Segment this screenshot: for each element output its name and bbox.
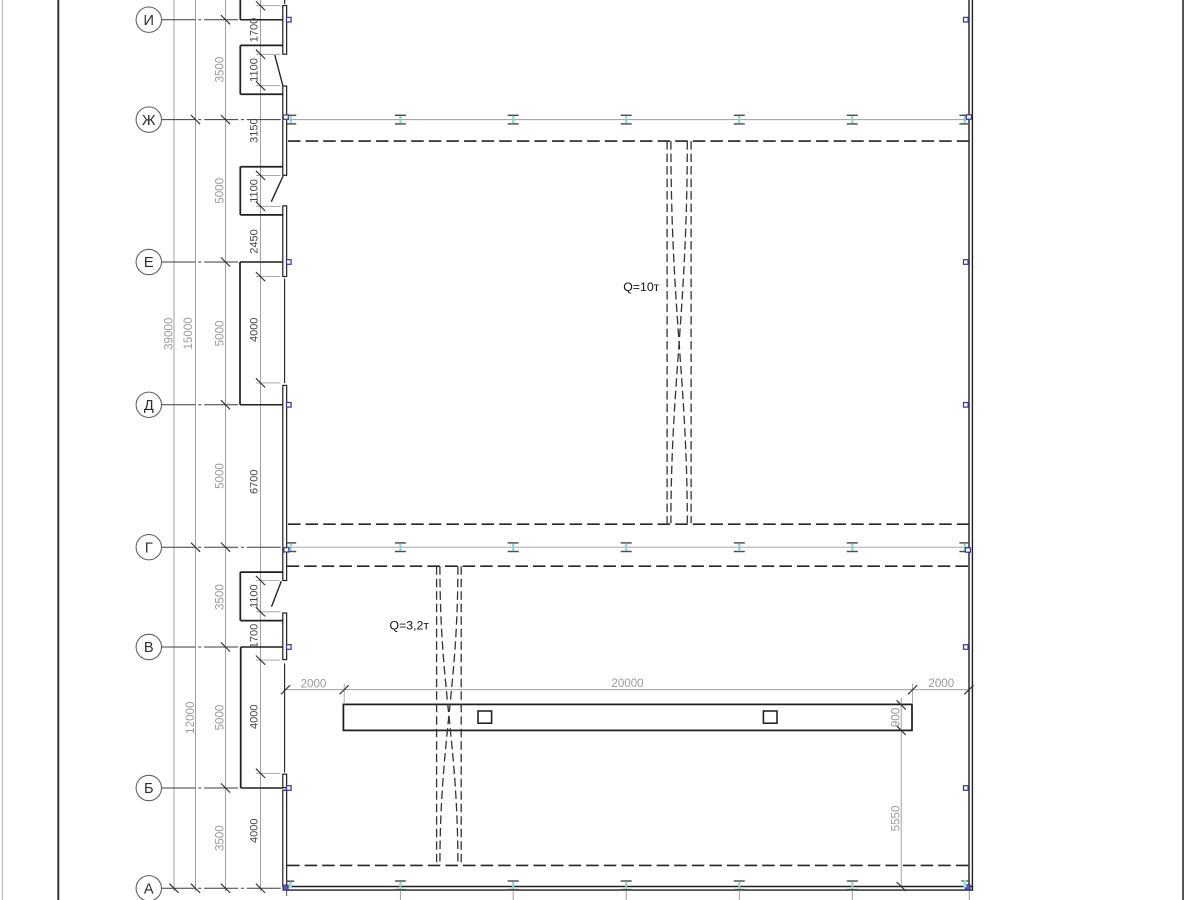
svg-text:3150: 3150 bbox=[249, 118, 261, 142]
svg-text:Е: Е bbox=[144, 255, 154, 271]
svg-text:Q=10т: Q=10т bbox=[623, 280, 659, 294]
svg-text:5000: 5000 bbox=[214, 463, 227, 489]
svg-text:4000: 4000 bbox=[249, 818, 261, 842]
svg-text:3500: 3500 bbox=[214, 825, 227, 851]
svg-text:900: 900 bbox=[890, 708, 903, 727]
svg-text:1100: 1100 bbox=[249, 179, 261, 203]
svg-text:5000: 5000 bbox=[214, 705, 227, 731]
svg-text:И: И bbox=[144, 13, 155, 29]
svg-text:3500: 3500 bbox=[214, 57, 227, 83]
svg-text:39000: 39000 bbox=[163, 318, 176, 350]
svg-text:А: А bbox=[144, 882, 154, 898]
svg-text:1100: 1100 bbox=[249, 58, 261, 82]
svg-text:15000: 15000 bbox=[182, 317, 195, 349]
svg-text:2000: 2000 bbox=[301, 678, 327, 691]
svg-text:5550: 5550 bbox=[890, 806, 903, 832]
svg-text:2000: 2000 bbox=[928, 677, 954, 690]
svg-text:Б: Б bbox=[144, 781, 154, 797]
svg-text:1700: 1700 bbox=[249, 18, 261, 42]
svg-text:В: В bbox=[144, 640, 154, 656]
svg-text:1100: 1100 bbox=[249, 584, 261, 608]
svg-text:2450: 2450 bbox=[249, 229, 261, 253]
svg-text:Г: Г bbox=[145, 540, 153, 556]
svg-text:3500: 3500 bbox=[214, 584, 227, 610]
svg-text:Ж: Ж bbox=[142, 113, 156, 129]
svg-text:6700: 6700 bbox=[249, 469, 261, 493]
svg-text:12000: 12000 bbox=[184, 702, 197, 734]
svg-text:Q=3,2т: Q=3,2т bbox=[390, 618, 430, 632]
svg-text:4000: 4000 bbox=[249, 704, 261, 728]
svg-text:4000: 4000 bbox=[249, 318, 261, 342]
svg-text:20000: 20000 bbox=[611, 677, 643, 690]
svg-text:5000: 5000 bbox=[214, 321, 227, 347]
svg-text:5000: 5000 bbox=[214, 178, 227, 204]
svg-text:1700: 1700 bbox=[249, 624, 261, 648]
svg-text:Д: Д bbox=[144, 398, 154, 414]
